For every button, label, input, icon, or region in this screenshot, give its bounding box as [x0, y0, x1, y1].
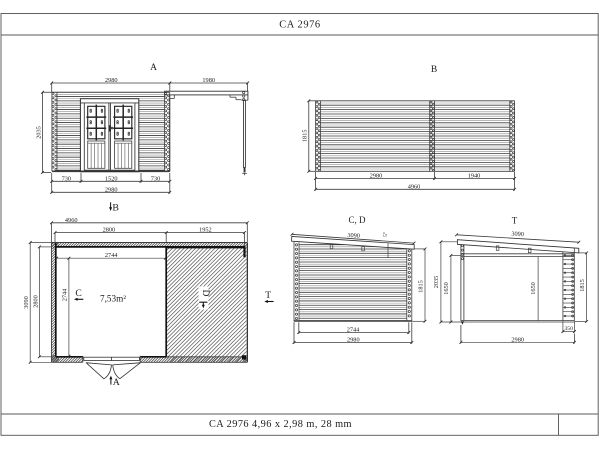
svg-text:C, D: C, D	[348, 215, 366, 225]
svg-text:4960: 4960	[65, 217, 78, 224]
svg-text:1815: 1815	[417, 280, 424, 293]
svg-text:C: C	[75, 288, 81, 299]
svg-text:CA 2976 4,96 x 2,98 m, 28 mm: CA 2976 4,96 x 2,98 m, 28 mm	[209, 419, 352, 430]
svg-text:3090: 3090	[511, 231, 524, 239]
svg-text:A: A	[113, 377, 120, 388]
svg-text:2035: 2035	[36, 126, 43, 139]
svg-text:2035: 2035	[433, 276, 440, 289]
svg-text:1940: 1940	[468, 172, 481, 179]
svg-text:1650: 1650	[443, 282, 450, 295]
svg-text:7,53m²: 7,53m²	[100, 294, 126, 304]
svg-text:2980: 2980	[347, 337, 360, 344]
svg-text:T: T	[265, 290, 271, 301]
svg-text:2980: 2980	[105, 77, 118, 84]
svg-text:1815: 1815	[302, 130, 309, 143]
svg-text:CA 2976: CA 2976	[279, 20, 320, 31]
svg-text:1815: 1815	[579, 279, 586, 292]
svg-text:2744: 2744	[105, 252, 118, 259]
svg-text:2980: 2980	[105, 186, 118, 193]
svg-text:3090: 3090	[347, 232, 360, 240]
svg-text:1980: 1980	[202, 77, 215, 84]
svg-text:350: 350	[565, 326, 574, 332]
svg-text:4960: 4960	[408, 183, 421, 190]
svg-text:T: T	[512, 216, 518, 226]
svg-text:A: A	[150, 63, 157, 73]
svg-text:B: B	[431, 65, 437, 75]
svg-text:3090: 3090	[23, 296, 30, 309]
svg-text:2800: 2800	[32, 295, 39, 308]
svg-text:2980: 2980	[511, 336, 524, 343]
svg-text:2744: 2744	[62, 288, 69, 301]
svg-text:2744: 2744	[347, 327, 360, 334]
svg-text:2800: 2800	[103, 227, 116, 234]
svg-text:B: B	[112, 203, 119, 214]
svg-text:730: 730	[151, 175, 160, 182]
svg-text:730: 730	[62, 175, 71, 182]
svg-text:1520: 1520	[105, 175, 118, 182]
svg-text:2980: 2980	[370, 172, 383, 179]
svg-text:5°: 5°	[382, 232, 389, 237]
svg-text:D: D	[200, 290, 211, 297]
svg-text:1650: 1650	[530, 282, 537, 295]
svg-text:1952: 1952	[199, 227, 212, 234]
